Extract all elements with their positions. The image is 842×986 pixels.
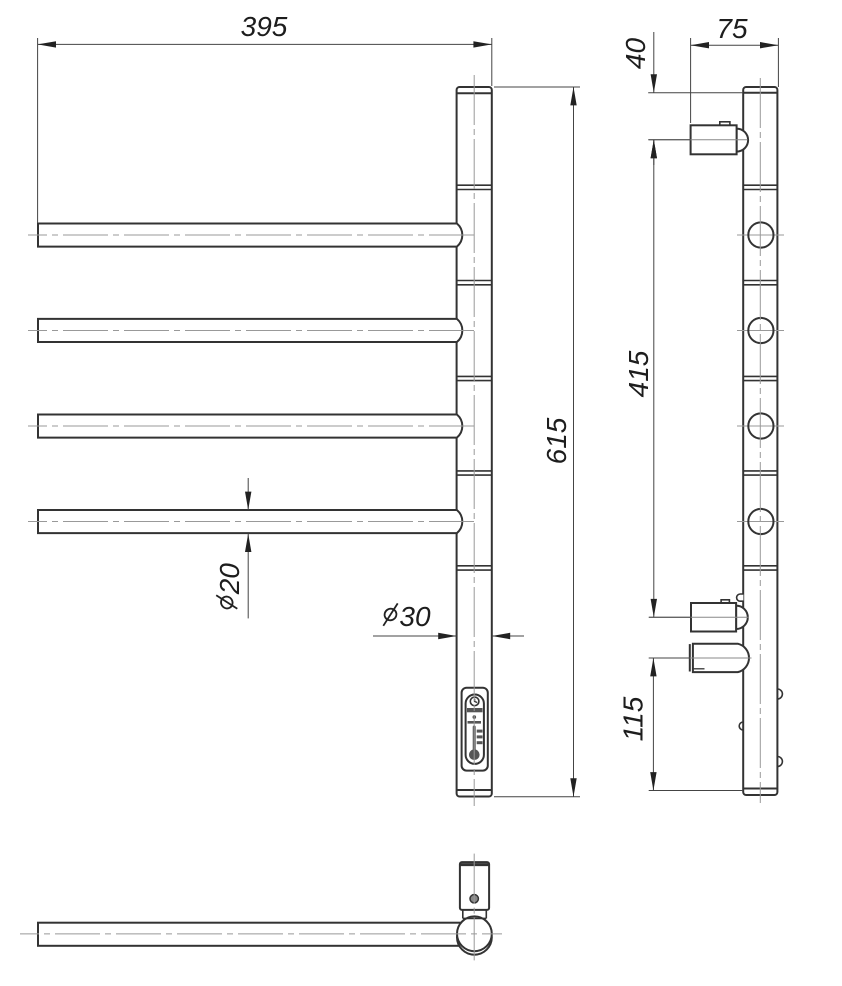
svg-text:30: 30: [399, 601, 431, 632]
svg-text:395: 395: [241, 11, 288, 42]
svg-text:415: 415: [623, 350, 654, 397]
svg-text:40: 40: [620, 38, 651, 70]
svg-text:75: 75: [716, 13, 748, 44]
svg-text:115: 115: [618, 696, 649, 741]
svg-text:615: 615: [541, 417, 572, 464]
svg-text:20: 20: [214, 563, 245, 596]
